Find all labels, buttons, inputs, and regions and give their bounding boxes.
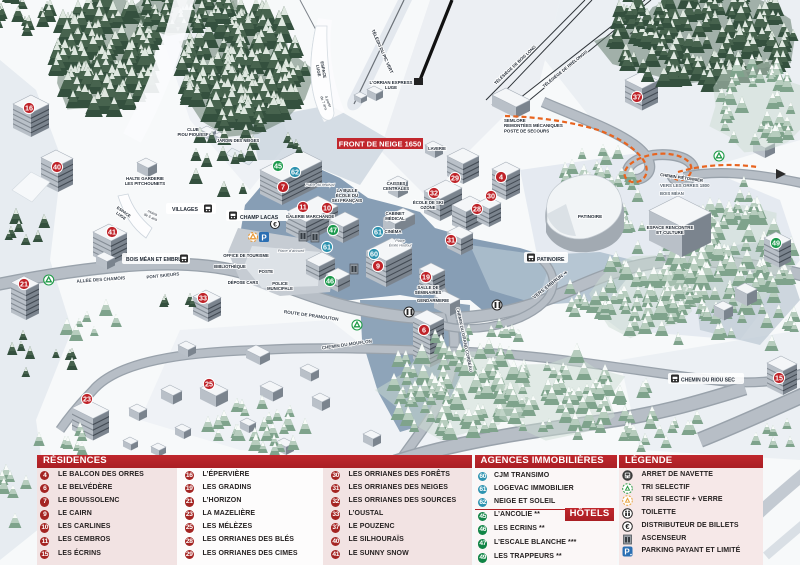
- svg-text:40: 40: [53, 162, 61, 171]
- svg-text:CHAMP LACAS: CHAMP LACAS: [240, 215, 279, 221]
- svg-text:6: 6: [422, 325, 426, 334]
- svg-text:10: 10: [323, 203, 331, 212]
- svg-text:16: 16: [25, 103, 33, 112]
- svg-text:P: P: [624, 548, 630, 557]
- svg-text:49: 49: [772, 238, 780, 247]
- svg-text:62: 62: [291, 167, 299, 176]
- svg-text:CHEMIN DU RIOU SEC: CHEMIN DU RIOU SEC: [681, 378, 735, 384]
- svg-text:P: P: [261, 233, 267, 242]
- svg-text:29: 29: [451, 173, 459, 182]
- svg-text:PATINOIRE: PATINOIRE: [537, 257, 565, 263]
- svg-text:PATINOIRE: PATINOIRE: [578, 214, 602, 219]
- svg-text:45: 45: [274, 161, 282, 170]
- svg-text:Place d'accueil: Place d'accueil: [278, 248, 305, 253]
- svg-text:7: 7: [281, 182, 285, 191]
- svg-text:HALTE GARDERIELES PITCHOUNETS: HALTE GARDERIELES PITCHOUNETS: [125, 176, 165, 186]
- svg-text:41: 41: [108, 227, 116, 236]
- svg-text:GALERIE MARCHANDE: GALERIE MARCHANDE: [286, 214, 335, 219]
- svg-text:46: 46: [326, 276, 334, 285]
- svg-text:37: 37: [633, 92, 641, 101]
- svg-text:33: 33: [199, 293, 207, 302]
- svg-text:25: 25: [205, 379, 213, 388]
- svg-text:21: 21: [20, 279, 28, 288]
- svg-text:GENDARMERIE: GENDARMERIE: [417, 298, 449, 303]
- svg-text:OFFICE DE TOURISME: OFFICE DE TOURISME: [223, 253, 269, 258]
- svg-text:CABINETMÉDICAL: CABINETMÉDICAL: [385, 211, 405, 221]
- svg-text:30: 30: [487, 191, 495, 200]
- svg-text:19: 19: [422, 272, 430, 281]
- svg-text:POSTE: POSTE: [259, 269, 273, 274]
- svg-text:LAVERIE: LAVERIE: [428, 146, 446, 151]
- svg-text:11: 11: [299, 202, 307, 211]
- svg-text:32: 32: [430, 188, 438, 197]
- svg-text:BIBLIOTHÈQUE: BIBLIOTHÈQUE: [214, 264, 246, 269]
- svg-text:BOIS MÉAN ET EMBRUN: BOIS MÉAN ET EMBRUN: [126, 255, 186, 263]
- svg-text:CINÉMA: CINÉMA: [385, 229, 402, 234]
- svg-text:JARDIN DES NEIGES: JARDIN DES NEIGES: [217, 138, 260, 143]
- svg-text:47: 47: [329, 225, 337, 234]
- svg-text:DÉPOSE CARS: DÉPOSE CARS: [228, 280, 259, 285]
- svg-text:9: 9: [376, 261, 380, 270]
- svg-text:FRONT DE NEIGE 1650: FRONT DE NEIGE 1650: [339, 140, 422, 149]
- svg-text:4: 4: [499, 172, 503, 181]
- svg-text:15: 15: [775, 373, 783, 382]
- svg-text:31: 31: [447, 235, 455, 244]
- svg-text:61: 61: [323, 242, 331, 251]
- svg-text:BOIS MÉAN: BOIS MÉAN: [660, 191, 684, 196]
- svg-text:28: 28: [473, 204, 481, 213]
- svg-text:SALLE DESÉMINAIRES: SALLE DESÉMINAIRES: [415, 285, 442, 295]
- svg-text:CAISSESCENTRALES: CAISSESCENTRALES: [383, 181, 409, 191]
- svg-text:€: €: [273, 222, 277, 229]
- svg-text:61: 61: [374, 227, 382, 236]
- svg-text:Place du festival: Place du festival: [305, 182, 334, 187]
- svg-text:23: 23: [83, 394, 91, 403]
- svg-text:60: 60: [370, 249, 378, 258]
- svg-text:VILLAGES: VILLAGES: [172, 207, 198, 213]
- svg-text:VERS LES ORRES 1800: VERS LES ORRES 1800: [660, 183, 710, 188]
